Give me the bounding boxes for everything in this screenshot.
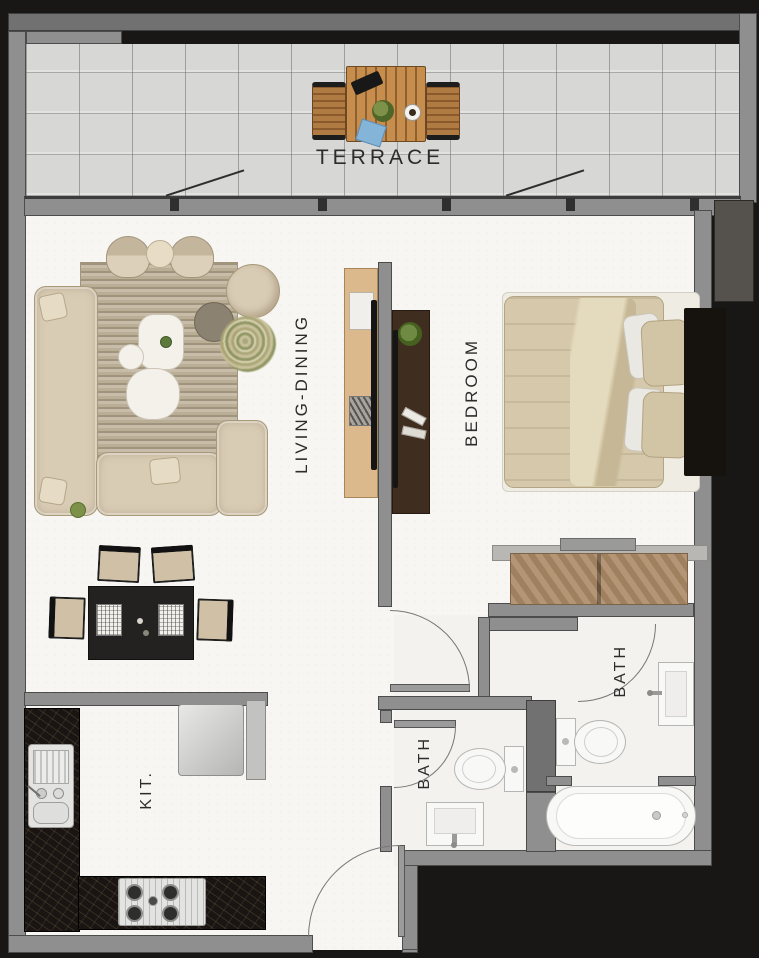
room-label-bath-main: BATH [612,644,630,697]
window-mullion [318,198,327,211]
sofa-pillow [38,292,69,323]
armchair [170,236,214,278]
vanity-faucet-knob-small [451,842,457,848]
window-mullion [566,198,575,211]
refrigerator [178,704,244,776]
vanity-basin-main [665,671,687,717]
room-label-bedroom: BEDROOM [462,338,482,447]
wall-tub-stub-right [658,776,696,786]
vanity-faucet-knob-main [647,690,653,696]
kitchen-soap [53,788,64,799]
dresser [510,553,688,605]
cooktop-knob [148,896,158,906]
kitchen-sink-basin [33,802,69,824]
bed-headboard [684,308,726,476]
sofa-pillow [38,476,68,506]
window-mullion [170,198,179,211]
table-plant-decor [160,336,172,348]
room-label-terrace: TERRACE [300,146,460,170]
side-table [146,240,174,268]
tv-bedroom-side [393,330,398,488]
wall-bath-small-top [378,696,532,710]
toilet-flush-small [511,766,518,773]
dining-table-decor [137,618,143,624]
dining-chair [196,598,233,641]
balcony-return-ledge [714,200,754,302]
coffee-table-round [118,344,144,370]
room-label-bath-small: BATH [416,736,434,789]
wall-bedroom-south [488,603,694,617]
placemat [96,604,122,636]
placemat [158,604,184,636]
terrace-plant [372,100,394,122]
cooktop-burner [162,884,179,901]
toilet-bowl-small-inner [462,755,496,783]
tv-living-side [371,300,377,470]
room-label-living: LIVING-DINING [292,314,312,474]
armchair [106,236,150,278]
terrace-chair-left [312,82,346,140]
sofa-side-plant [70,502,86,518]
wall-top-step [26,31,122,44]
wall-tub-stub-left [546,776,572,786]
bathtub-overflow [682,812,688,818]
bathtub-inner [556,793,686,839]
cooktop-burner [126,884,143,901]
wall-bath-main-stub [478,617,578,631]
wall-bath-small-left-lower [380,786,392,852]
pouf-ottoman [226,264,280,318]
bathtub-drain [652,811,661,820]
media-unit-plant [398,322,422,346]
dining-table-decor [143,630,149,636]
dining-chair [48,596,85,639]
window-mullion [442,198,451,211]
cooktop-burner [162,905,179,922]
vanity-faucet-main [652,691,662,695]
floor-plant [220,316,276,372]
floor-plan: TERRACE [0,0,759,958]
kitchen-sink-drainboard [33,750,69,784]
sofa-pillow [149,457,182,486]
sofa-chaise [216,420,268,516]
vanity-basin-small [434,808,476,834]
wall-top-outer [8,13,757,31]
dining-chair [151,545,195,584]
wall-terrace-right [739,13,757,203]
coffee-table-oval [126,368,180,420]
dresser-top-item [560,538,636,551]
terrace-cup-coffee [409,109,416,116]
terrace-chair-right [426,82,460,140]
toilet-flush-main [562,738,569,745]
wall-bottom-right [402,850,712,866]
wall-partition-living-bedroom [378,262,392,607]
wall-terrace-window [24,196,741,216]
wall-bath-small-left-upper [380,710,392,723]
room-label-kitchen: KIT. [138,770,156,810]
cooktop-burner [126,905,143,922]
wall-bottom-left [8,935,313,953]
wall-bath-main-stub-vert [478,617,490,702]
wall-fridge-side-panel [246,700,266,780]
dining-chair [97,545,141,583]
toilet-bowl-main-inner [584,727,618,757]
